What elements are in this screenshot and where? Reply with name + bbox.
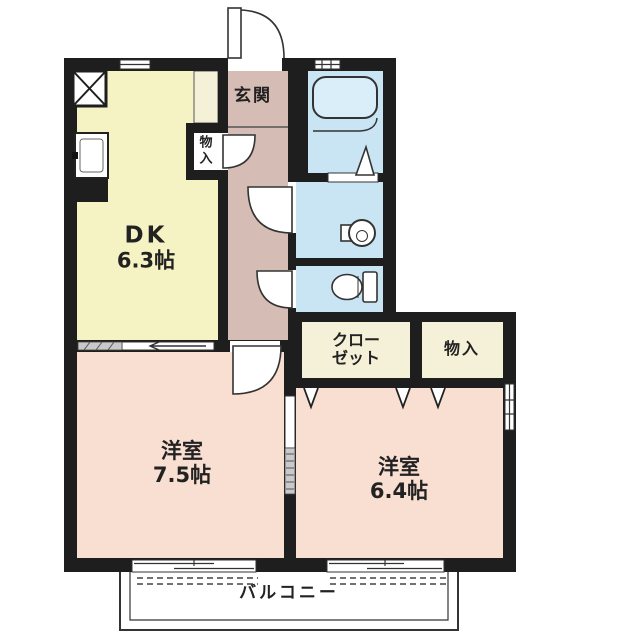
wall-closet-bottom	[296, 378, 516, 388]
wall-bath-left	[288, 71, 308, 182]
floor-plan: 玄関 物 入 DK 6.3帖 クロー ゼット 物入 洋室 7.5帖 洋室 6.4…	[0, 0, 640, 640]
label-bedroom-2: 洋室 6.4帖	[370, 455, 428, 503]
kitchen-faucet-icon	[72, 152, 78, 159]
label-closet: クロー ゼット	[332, 332, 380, 369]
wall-right-lower	[503, 322, 516, 572]
entrance-name: 玄関	[234, 86, 272, 106]
label-entrance: 玄関	[234, 87, 272, 107]
bedroom2-size: 6.4帖	[370, 479, 428, 503]
bedroom2-name: 洋室	[370, 455, 428, 479]
wall-storage-left	[186, 123, 194, 180]
wall-kitchen-stub	[64, 178, 108, 202]
wall-hall-right-a	[288, 233, 296, 270]
wall-right-upper	[383, 58, 396, 322]
closet-line2: ゼット	[332, 350, 380, 368]
dk-size: 6.3帖	[117, 249, 175, 273]
washbasin-icon	[349, 220, 375, 246]
wall-wash-toilet	[296, 258, 383, 266]
room-washroom	[296, 182, 383, 258]
wall-closet-top	[288, 312, 516, 322]
bedroom1-name: 洋室	[153, 439, 211, 463]
wall-closet-left	[296, 322, 302, 378]
dk-name: DK	[117, 223, 175, 249]
bedroom-divider-door-leaf-icon	[285, 448, 295, 494]
room-dk	[77, 71, 194, 340]
closet-line1: クロー	[332, 332, 380, 350]
toilet-tank-icon	[363, 272, 377, 302]
entrance-door-arc-icon	[241, 10, 284, 58]
wall-closet-divider	[410, 322, 422, 378]
shoe-cabinet	[194, 71, 218, 123]
label-dk: DK 6.3帖	[117, 223, 175, 274]
balcony-name: バルコニー	[239, 583, 339, 603]
bedroom-divider-door-track-icon	[285, 396, 295, 448]
room-dk-extension	[194, 180, 218, 340]
entrance-door-leaf-icon	[228, 8, 241, 58]
wall-hall-right-b	[288, 308, 296, 342]
kitchen-sink-basin	[80, 139, 103, 172]
label-balcony: バルコニー	[239, 584, 339, 604]
label-bedroom-1: 洋室 7.5帖	[153, 439, 211, 487]
hall-storage-char-1: 物	[199, 135, 212, 151]
storage-name: 物入	[444, 339, 480, 358]
floor-plan-drawing	[0, 0, 640, 640]
label-storage: 物入	[444, 340, 480, 358]
bedroom1-size: 7.5帖	[153, 463, 211, 487]
hall-storage-char-2: 入	[199, 151, 212, 167]
entrance-opening	[228, 58, 282, 71]
bathtub-icon	[313, 77, 377, 118]
balcony-rail-dashes-2	[330, 578, 446, 584]
wall-dk-hall-lower	[218, 170, 228, 345]
label-hall-storage: 物 入	[199, 135, 212, 166]
